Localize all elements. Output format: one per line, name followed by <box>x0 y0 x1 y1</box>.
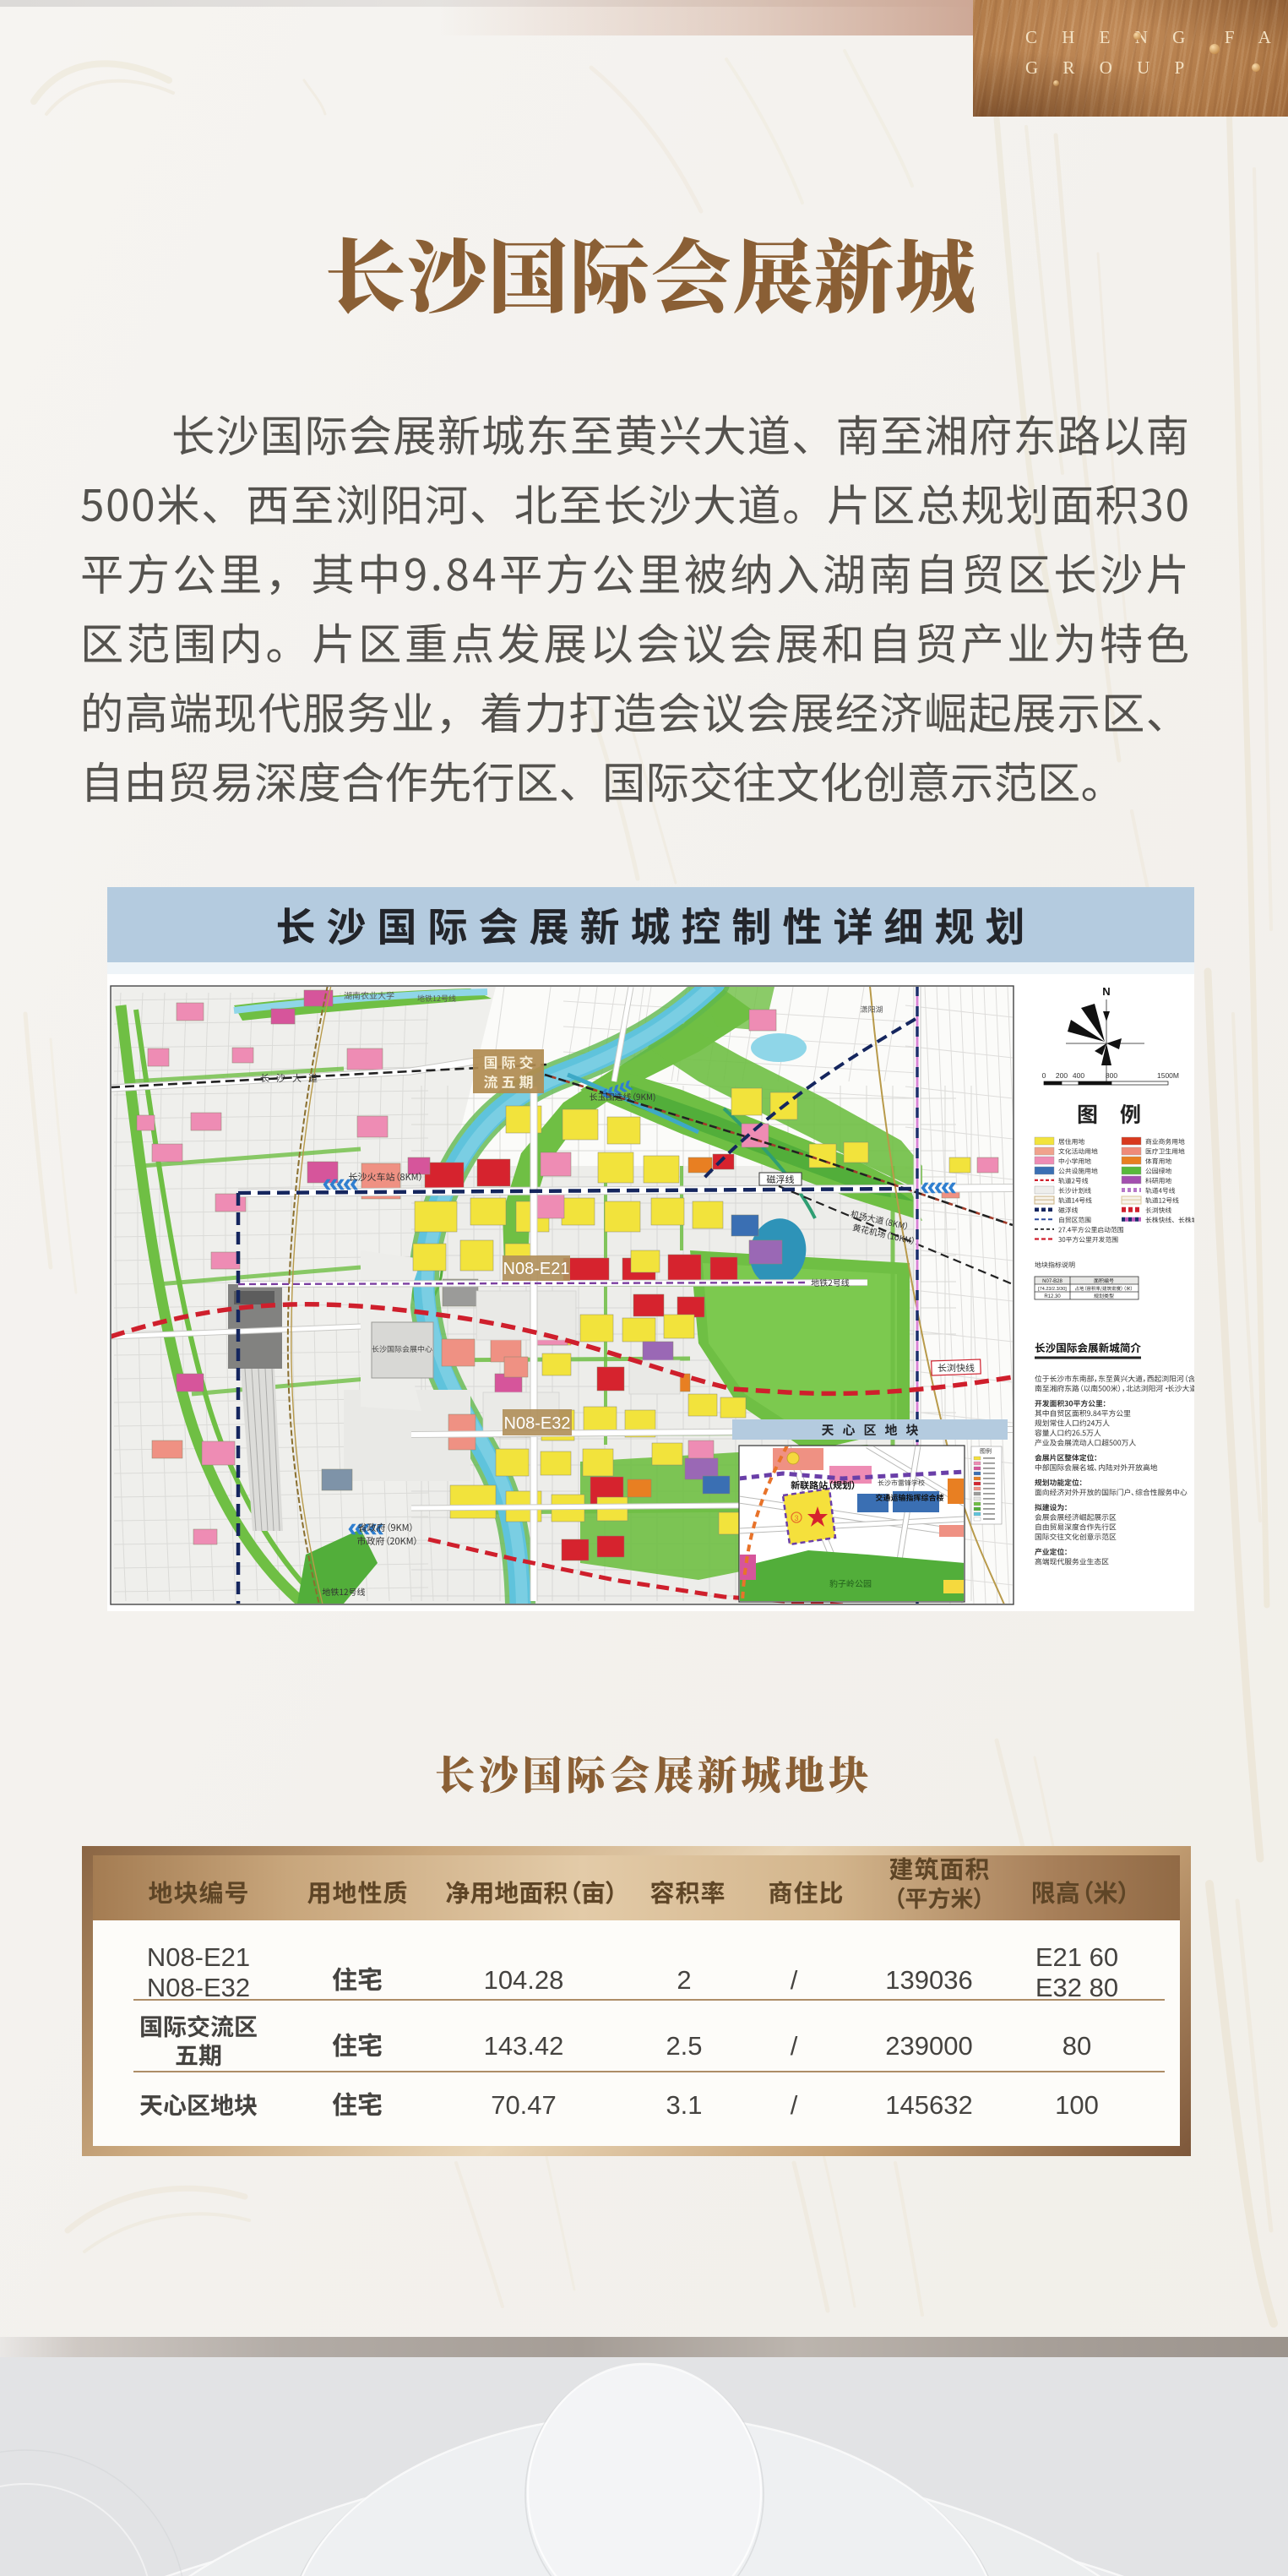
svg-text:N: N <box>1102 985 1110 998</box>
svg-text:E32 80: E32 80 <box>1035 1973 1118 2002</box>
svg-text:/: / <box>791 2031 798 2061</box>
svg-text:143.42: 143.42 <box>484 2031 564 2061</box>
svg-text:E21 60: E21 60 <box>1035 1942 1118 1972</box>
svg-text:N08-E21: N08-E21 <box>503 1260 570 1278</box>
svg-text:R12.30: R12.30 <box>1044 1294 1061 1299</box>
svg-text:145632: 145632 <box>885 2090 972 2120</box>
svg-text:N07-B28: N07-B28 <box>1042 1279 1062 1284</box>
svg-text:80: 80 <box>1062 2031 1091 2061</box>
svg-text:/: / <box>791 2090 798 2120</box>
svg-text:100: 100 <box>1055 2090 1099 2120</box>
svg-text:/: / <box>791 1965 798 1995</box>
svg-text:1500M: 1500M <box>1157 1071 1179 1080</box>
svg-text:N08-E32: N08-E32 <box>147 1973 250 2002</box>
svg-text:104.28: 104.28 <box>484 1965 564 1995</box>
svg-text:800: 800 <box>1106 1071 1117 1080</box>
svg-text:3.1: 3.1 <box>666 2090 702 2120</box>
svg-text:200: 200 <box>1056 1071 1068 1080</box>
svg-text:3: 3 <box>794 1514 798 1522</box>
svg-text:2: 2 <box>677 1965 691 1995</box>
svg-text:239000: 239000 <box>885 2031 972 2061</box>
svg-text:70.47: 70.47 <box>491 2090 557 2120</box>
svg-text:N08-E32: N08-E32 <box>504 1414 571 1433</box>
svg-text:0: 0 <box>1042 1071 1046 1080</box>
svg-text:[74.23/2.3/30]: [74.23/2.3/30] <box>1038 1287 1067 1292</box>
svg-text:2.5: 2.5 <box>666 2031 702 2061</box>
svg-text:400: 400 <box>1073 1071 1084 1080</box>
svg-text:N08-E21: N08-E21 <box>147 1942 250 1972</box>
svg-text:139036: 139036 <box>885 1965 972 1995</box>
